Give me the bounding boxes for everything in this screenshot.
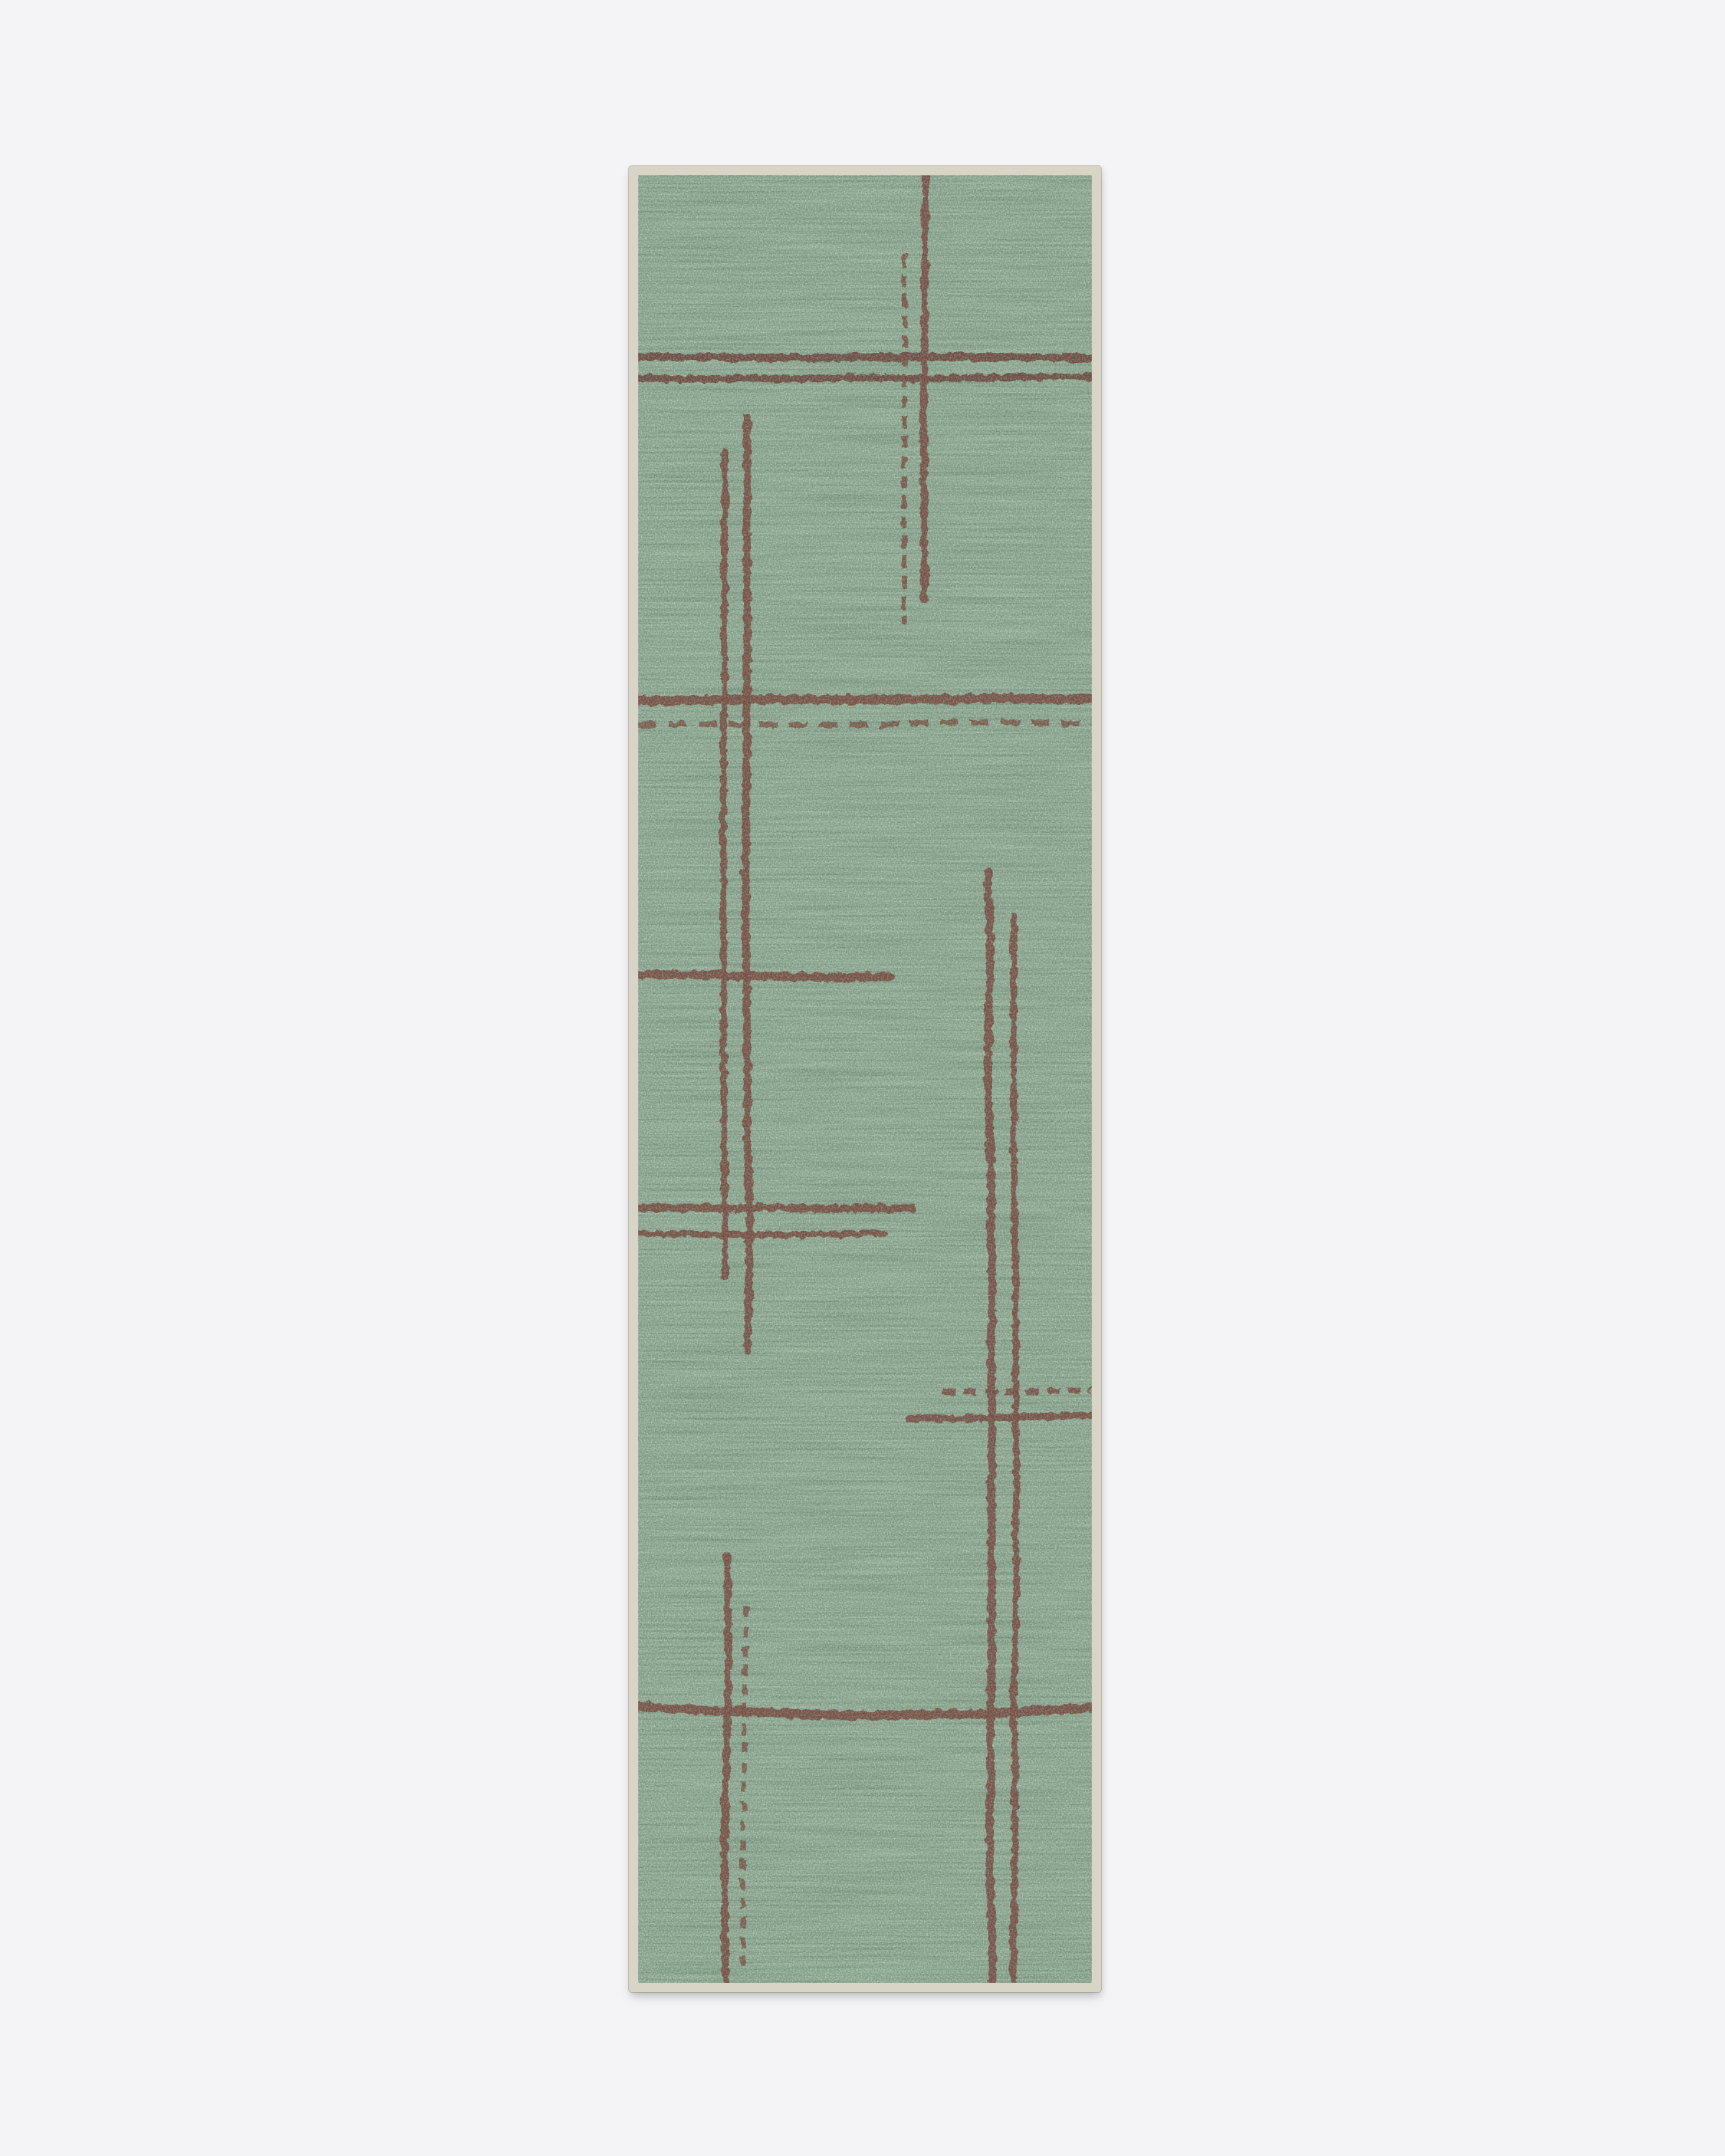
rug-line-h-top-1 xyxy=(638,356,1092,358)
rug-line-h-mid-1 xyxy=(638,698,1092,701)
rug-line-h-right-dashed xyxy=(943,1391,1092,1392)
rug-line-h-top-2 xyxy=(638,377,1092,379)
rug-field xyxy=(638,175,1092,1983)
rug-line-v-bottomleft-solid xyxy=(724,1555,728,1983)
rug-line-v-topright-dashed xyxy=(904,254,906,625)
rug-line-h-bottom xyxy=(638,1706,1092,1716)
rug-line-h-mid-dashed xyxy=(638,722,1092,725)
rug-line-v-topright-solid xyxy=(923,175,926,599)
rug-product-image xyxy=(629,166,1101,1992)
rug-line-v-right-long-2 xyxy=(1013,916,1017,1983)
rug-line-v-bottomleft-dashed xyxy=(742,1607,747,1973)
rug-line-h-right-short xyxy=(908,1416,1092,1419)
rug-line-h-left-short-2 xyxy=(638,1207,912,1209)
rug-pattern-lines xyxy=(638,175,1092,1983)
page-background xyxy=(0,0,1725,2156)
rug-line-h-left-short-1 xyxy=(638,975,890,977)
rug-line-v-right-long-1 xyxy=(988,871,993,1983)
rug-line-h-left-short-3 xyxy=(638,1233,884,1235)
rug-line-v-upperleft-short xyxy=(723,451,725,1278)
